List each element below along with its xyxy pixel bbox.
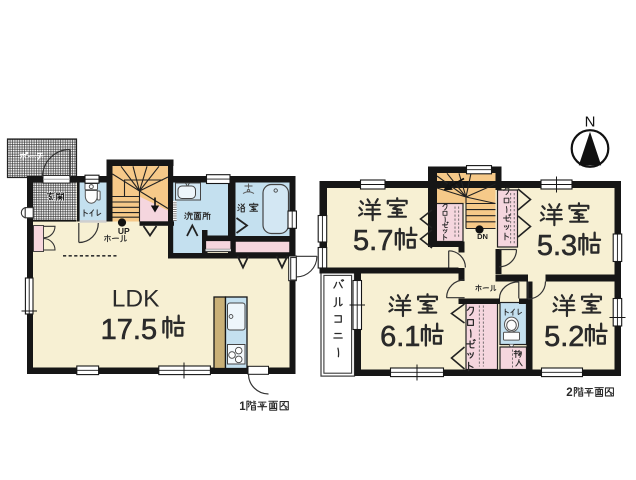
- svg-text:N: N: [585, 114, 596, 131]
- svg-text:5.2: 5.2: [544, 321, 584, 353]
- svg-text:LDK: LDK: [112, 286, 160, 313]
- svg-text:UP: UP: [118, 226, 130, 236]
- svg-text:2: 2: [566, 387, 572, 399]
- svg-text:DN: DN: [477, 232, 488, 241]
- svg-text:1: 1: [239, 401, 246, 413]
- svg-text:17.5: 17.5: [101, 314, 157, 346]
- svg-text:5.7: 5.7: [353, 225, 393, 257]
- svg-text:6.1: 6.1: [380, 321, 420, 353]
- svg-text:5.3: 5.3: [537, 230, 577, 262]
